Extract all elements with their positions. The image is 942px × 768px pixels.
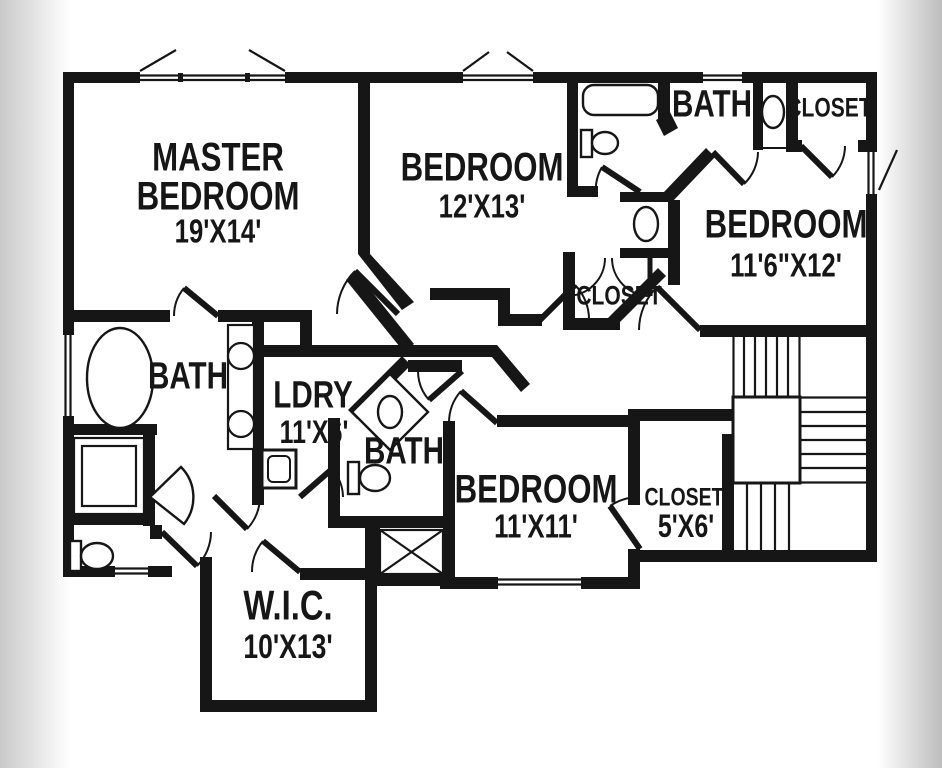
- roof-line: [507, 52, 533, 71]
- laundry-label: LDRY: [273, 374, 353, 416]
- closet4-dims: 5'X6': [658, 509, 714, 545]
- bath-top-label: BATH: [672, 83, 752, 125]
- roof-line: [463, 52, 489, 71]
- door-swing-icon: [174, 288, 218, 316]
- bedroom2-dims: 12'X13': [439, 189, 526, 226]
- roof-line: [249, 50, 285, 71]
- sink-icon: [228, 411, 254, 437]
- sink-icon: [762, 96, 784, 128]
- bath-mid-label: BATH: [364, 430, 444, 472]
- sink-icon: [634, 207, 658, 241]
- utility-sink-icon: [262, 450, 296, 488]
- sink-icon: [228, 343, 254, 369]
- bedroom4-dims: 11'X11': [494, 509, 578, 546]
- closet4-label: CLOSET: [644, 483, 723, 511]
- linen-closet-icon: [380, 530, 443, 574]
- master-bath-label: BATH: [148, 355, 228, 397]
- bedroom4-label: BEDROOM: [455, 467, 618, 512]
- door-swing-icon: [252, 541, 300, 572]
- master-bedroom-label: BEDROOM: [137, 174, 300, 219]
- toilet-icon: [70, 541, 113, 571]
- closet-top-label: CLOSET: [786, 93, 872, 123]
- door-swing-icon: [713, 152, 758, 184]
- shower-icon: [74, 438, 144, 514]
- left-edge-shadow: [0, 0, 70, 768]
- bathtub-icon: [583, 85, 658, 115]
- door-swing-icon: [418, 371, 462, 400]
- wic-dims: 10'X13': [243, 628, 332, 666]
- double-vanity-icon: [228, 325, 254, 449]
- master-bedroom-label: MASTER: [152, 135, 284, 180]
- door-swing-icon: [449, 391, 497, 423]
- door-swing-icon: [596, 167, 640, 194]
- floor-plan-image: MASTER BEDROOM 19'X14' BEDROOM 12'X13' B…: [0, 0, 942, 768]
- staircase-icon: [733, 337, 866, 550]
- wic-label: W.I.C.: [243, 582, 332, 629]
- roof-line: [140, 50, 176, 71]
- right-edge-shadow: [878, 0, 942, 768]
- fan-door-icon: [150, 467, 193, 524]
- bedroom2-label: BEDROOM: [401, 145, 564, 190]
- laundry-dims: 11'X6': [280, 415, 349, 451]
- closet-mid-label: CLOSET: [576, 281, 662, 311]
- bedroom3-label: BEDROOM: [705, 202, 868, 247]
- floor-plan-svg: MASTER BEDROOM 19'X14' BEDROOM 12'X13' B…: [0, 0, 942, 768]
- stair-landing: [733, 397, 800, 483]
- bedroom3-dims: 11'6"X12': [730, 248, 842, 285]
- toilet-icon: [581, 130, 618, 157]
- door-swing-icon: [801, 146, 845, 177]
- master-bedroom-dims: 19'X14': [175, 214, 262, 251]
- garden-tub-icon: [87, 328, 153, 428]
